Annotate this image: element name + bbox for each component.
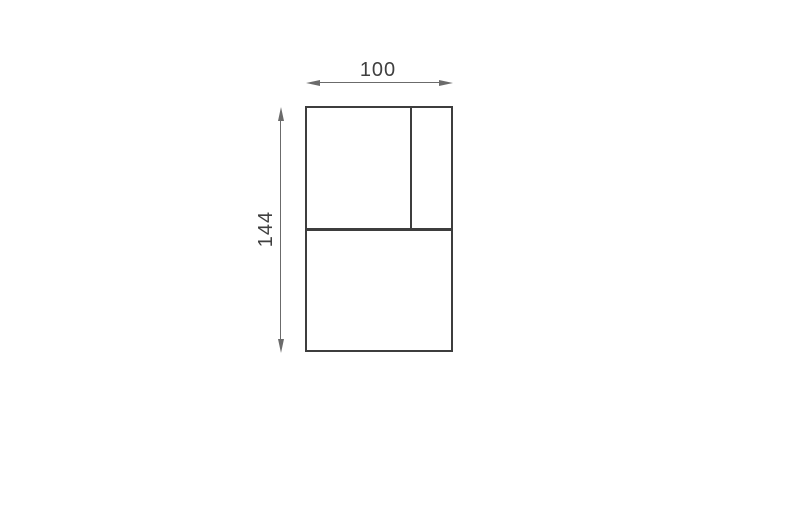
arrow-right-icon bbox=[439, 80, 453, 86]
arrow-down-icon bbox=[278, 339, 284, 353]
height-dimension-line bbox=[280, 114, 281, 340]
drawing-canvas: 100 144 bbox=[0, 0, 799, 518]
horizontal-divider-line bbox=[305, 228, 453, 231]
width-dimension-line bbox=[313, 82, 441, 83]
height-dimension-label: 144 bbox=[255, 189, 277, 269]
width-dimension-label: 100 bbox=[338, 59, 418, 81]
arrow-up-icon bbox=[278, 107, 284, 121]
arrow-left-icon bbox=[306, 80, 320, 86]
vertical-divider-line bbox=[410, 108, 412, 230]
